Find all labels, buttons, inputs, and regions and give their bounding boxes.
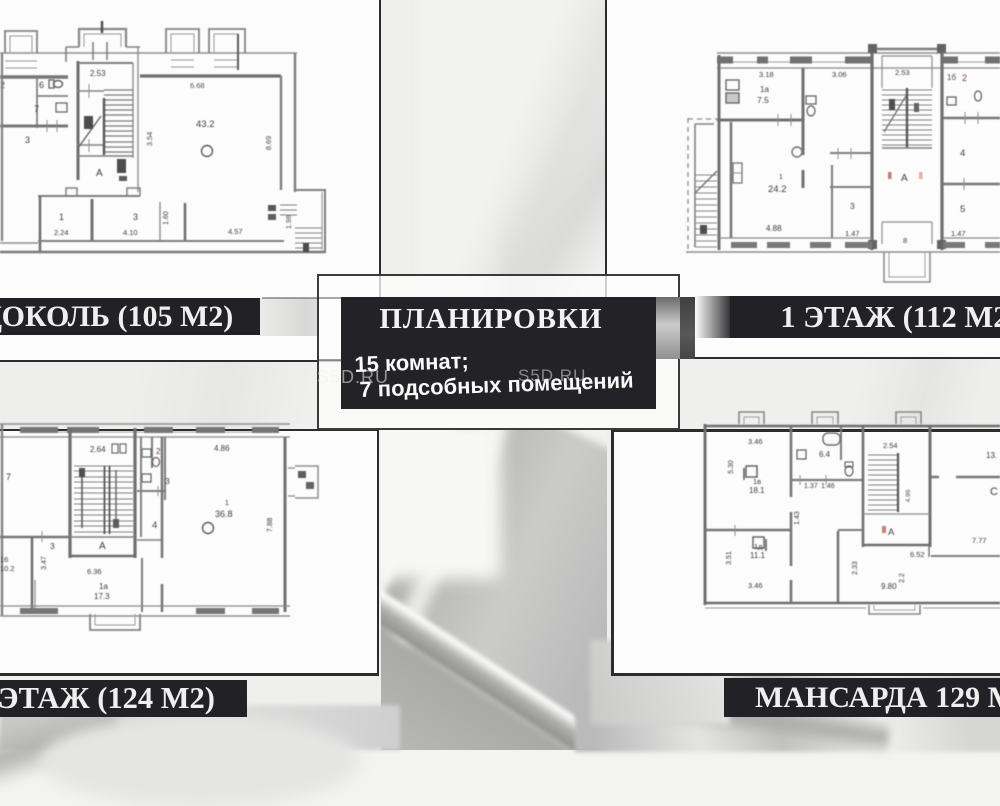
svg-text:С: С — [990, 486, 998, 498]
svg-text:1.47: 1.47 — [951, 229, 966, 238]
svg-text:2.33: 2.33 — [852, 561, 859, 575]
svg-text:4.57: 4.57 — [228, 227, 243, 236]
svg-text:А: А — [96, 168, 103, 179]
svg-text:1а: 1а — [99, 582, 108, 591]
svg-text:36.8: 36.8 — [215, 509, 233, 519]
svg-text:1.43: 1.43 — [794, 511, 801, 525]
svg-text:9.80: 9.80 — [881, 582, 897, 591]
svg-text:8: 8 — [903, 236, 907, 245]
svg-text:13.: 13. — [986, 451, 997, 460]
svg-text:4.86: 4.86 — [214, 444, 230, 453]
svg-text:6.4: 6.4 — [819, 450, 831, 459]
svg-text:4.10: 4.10 — [123, 228, 138, 237]
svg-text:2.2: 2.2 — [899, 573, 906, 583]
svg-text:6.52: 6.52 — [910, 550, 925, 559]
svg-text:А: А — [99, 541, 106, 552]
svg-text:А: А — [888, 527, 895, 538]
svg-text:2.64: 2.64 — [90, 445, 106, 454]
svg-text:3.46: 3.46 — [748, 437, 763, 446]
svg-text:7.5: 7.5 — [757, 95, 769, 105]
svg-text:1: 1 — [779, 174, 783, 181]
svg-text:10.2: 10.2 — [0, 564, 15, 573]
svg-text:2: 2 — [962, 73, 967, 83]
svg-text:17.3: 17.3 — [94, 592, 110, 601]
svg-text:5: 5 — [960, 204, 965, 215]
svg-text:8.69: 8.69 — [264, 136, 273, 151]
svg-text:7: 7 — [6, 472, 11, 482]
svg-text:2.24: 2.24 — [54, 228, 69, 237]
svg-text:1в: 1в — [753, 477, 761, 486]
svg-text:24.2: 24.2 — [768, 184, 787, 195]
svg-text:6: 6 — [39, 80, 44, 90]
svg-text:3: 3 — [133, 212, 138, 222]
svg-text:1.60: 1.60 — [163, 211, 170, 225]
svg-text:1.47: 1.47 — [845, 229, 860, 238]
svg-text:6.36: 6.36 — [87, 567, 102, 576]
svg-text:4.88: 4.88 — [766, 224, 782, 233]
svg-text:3: 3 — [165, 476, 170, 486]
svg-text:1б: 1б — [947, 73, 956, 82]
svg-text:1: 1 — [225, 500, 229, 507]
svg-text:3.18: 3.18 — [759, 70, 774, 79]
svg-text:3.46: 3.46 — [748, 581, 763, 590]
svg-text:2.54: 2.54 — [883, 441, 898, 450]
svg-text:5.30: 5.30 — [728, 460, 735, 474]
svg-text:43.2: 43.2 — [196, 119, 215, 130]
svg-text:16: 16 — [0, 555, 8, 564]
svg-text:4.96: 4.96 — [905, 489, 912, 502]
svg-text:3.06: 3.06 — [832, 70, 847, 79]
svg-text:18.1: 18.1 — [749, 486, 765, 495]
svg-text:11.1: 11.1 — [750, 551, 766, 560]
svg-text:7: 7 — [34, 104, 39, 114]
svg-text:1д: 1д — [754, 542, 763, 551]
svg-text:2.53: 2.53 — [895, 68, 910, 77]
svg-text:3.51: 3.51 — [726, 551, 733, 565]
svg-text:1.98: 1.98 — [286, 215, 293, 229]
svg-text:4: 4 — [152, 520, 157, 531]
svg-text:3: 3 — [850, 201, 855, 211]
svg-text:1.46: 1.46 — [821, 483, 835, 490]
svg-text:1: 1 — [59, 212, 64, 222]
svg-text:1а: 1а — [760, 85, 769, 94]
svg-text:А: А — [901, 173, 908, 184]
svg-text:2: 2 — [156, 447, 161, 456]
svg-text:4: 4 — [960, 148, 965, 159]
svg-text:3: 3 — [50, 541, 55, 551]
svg-text:7.77: 7.77 — [972, 536, 987, 545]
svg-text:3.54: 3.54 — [145, 132, 154, 147]
svg-text:6.68: 6.68 — [190, 81, 205, 90]
svg-text:2.53: 2.53 — [90, 69, 106, 78]
svg-text:1.37: 1.37 — [804, 483, 818, 490]
svg-text:3.47: 3.47 — [41, 556, 48, 570]
svg-text:7.88: 7.88 — [265, 518, 274, 533]
svg-text:3: 3 — [25, 135, 30, 145]
